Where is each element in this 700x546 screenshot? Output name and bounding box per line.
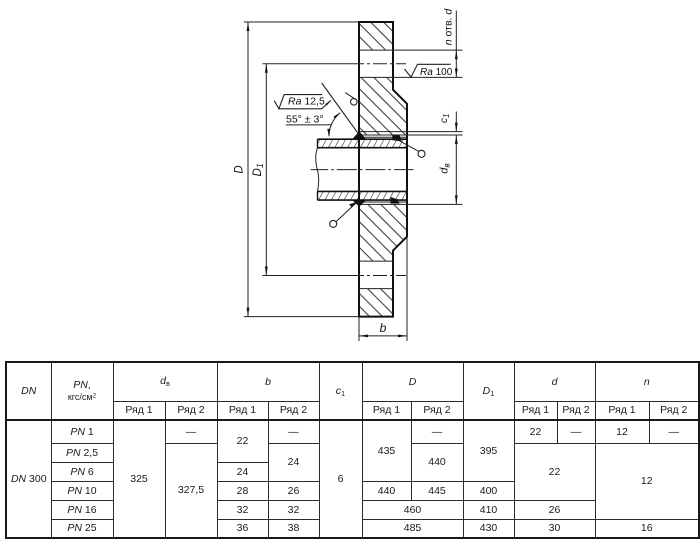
svg-text:55° ± 3°: 55° ± 3° [286,114,324,126]
svg-text:dв: dв [439,163,452,174]
svg-text:Ra 100: Ra 100 [420,67,453,78]
svg-text:b: b [380,321,387,335]
svg-text:D1: D1 [252,163,265,176]
svg-text:c1: c1 [439,114,451,123]
svg-text:Ra 12,5: Ra 12,5 [288,96,325,108]
svg-text:D: D [234,165,246,173]
svg-text:n отв. d: n отв. d [443,8,455,46]
